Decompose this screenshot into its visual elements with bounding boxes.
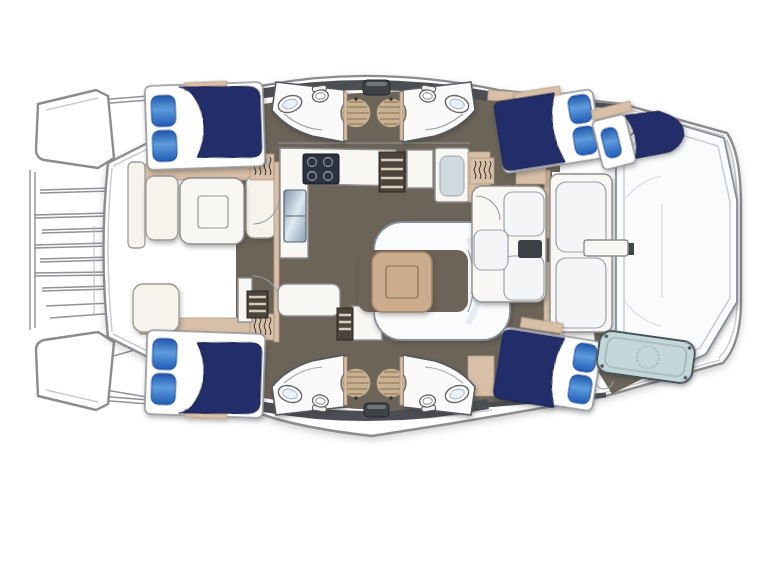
vanity-desk bbox=[278, 284, 340, 316]
forward-seat-left bbox=[146, 176, 178, 240]
pillow bbox=[572, 342, 598, 373]
nav-table bbox=[518, 240, 542, 258]
bed-forward-starboard bbox=[145, 330, 266, 420]
forward-side-bench bbox=[128, 162, 145, 248]
port-bow bbox=[36, 90, 114, 168]
deck-hatch-port bbox=[363, 80, 390, 95]
galley-cabinet bbox=[407, 150, 433, 188]
companionway-steps-starboard bbox=[247, 291, 268, 318]
toilet-starboard-aft bbox=[419, 394, 437, 412]
dining-table bbox=[372, 252, 432, 312]
cockpit-table bbox=[584, 240, 628, 256]
toilet-port-forward bbox=[311, 85, 329, 103]
head-wall bbox=[344, 92, 347, 140]
stove bbox=[303, 154, 339, 184]
pillow bbox=[567, 374, 593, 405]
forward-bulkhead bbox=[274, 162, 279, 342]
toilet-port-aft bbox=[419, 85, 437, 103]
page-background bbox=[0, 0, 768, 576]
pillow bbox=[151, 95, 176, 127]
toilet-starboard-forward bbox=[311, 394, 329, 412]
nav-seat-cushion bbox=[474, 230, 508, 270]
head-wall bbox=[400, 92, 403, 140]
boat-floorplan bbox=[0, 0, 768, 576]
nav-seat-cushion bbox=[504, 192, 544, 236]
deck-hatch-starboard bbox=[364, 403, 389, 417]
pillow bbox=[152, 338, 177, 370]
forward-table bbox=[180, 178, 244, 244]
pillow bbox=[151, 373, 176, 405]
hull-steps-starboard bbox=[337, 308, 353, 340]
forward-seat-right bbox=[246, 176, 276, 238]
forward-seat-aft bbox=[133, 284, 179, 332]
head-wall bbox=[400, 357, 403, 405]
pillow bbox=[152, 130, 177, 162]
head-wall bbox=[344, 357, 347, 405]
aft-bench-cushion bbox=[556, 258, 606, 328]
companionway-steps-port bbox=[379, 152, 405, 192]
fridge bbox=[435, 148, 469, 202]
forward-crossbeam bbox=[30, 170, 35, 330]
bed-forward-port bbox=[145, 80, 266, 170]
pillow bbox=[567, 93, 593, 124]
nav-seat-cushion bbox=[504, 256, 544, 300]
starboard-bow bbox=[36, 332, 114, 410]
